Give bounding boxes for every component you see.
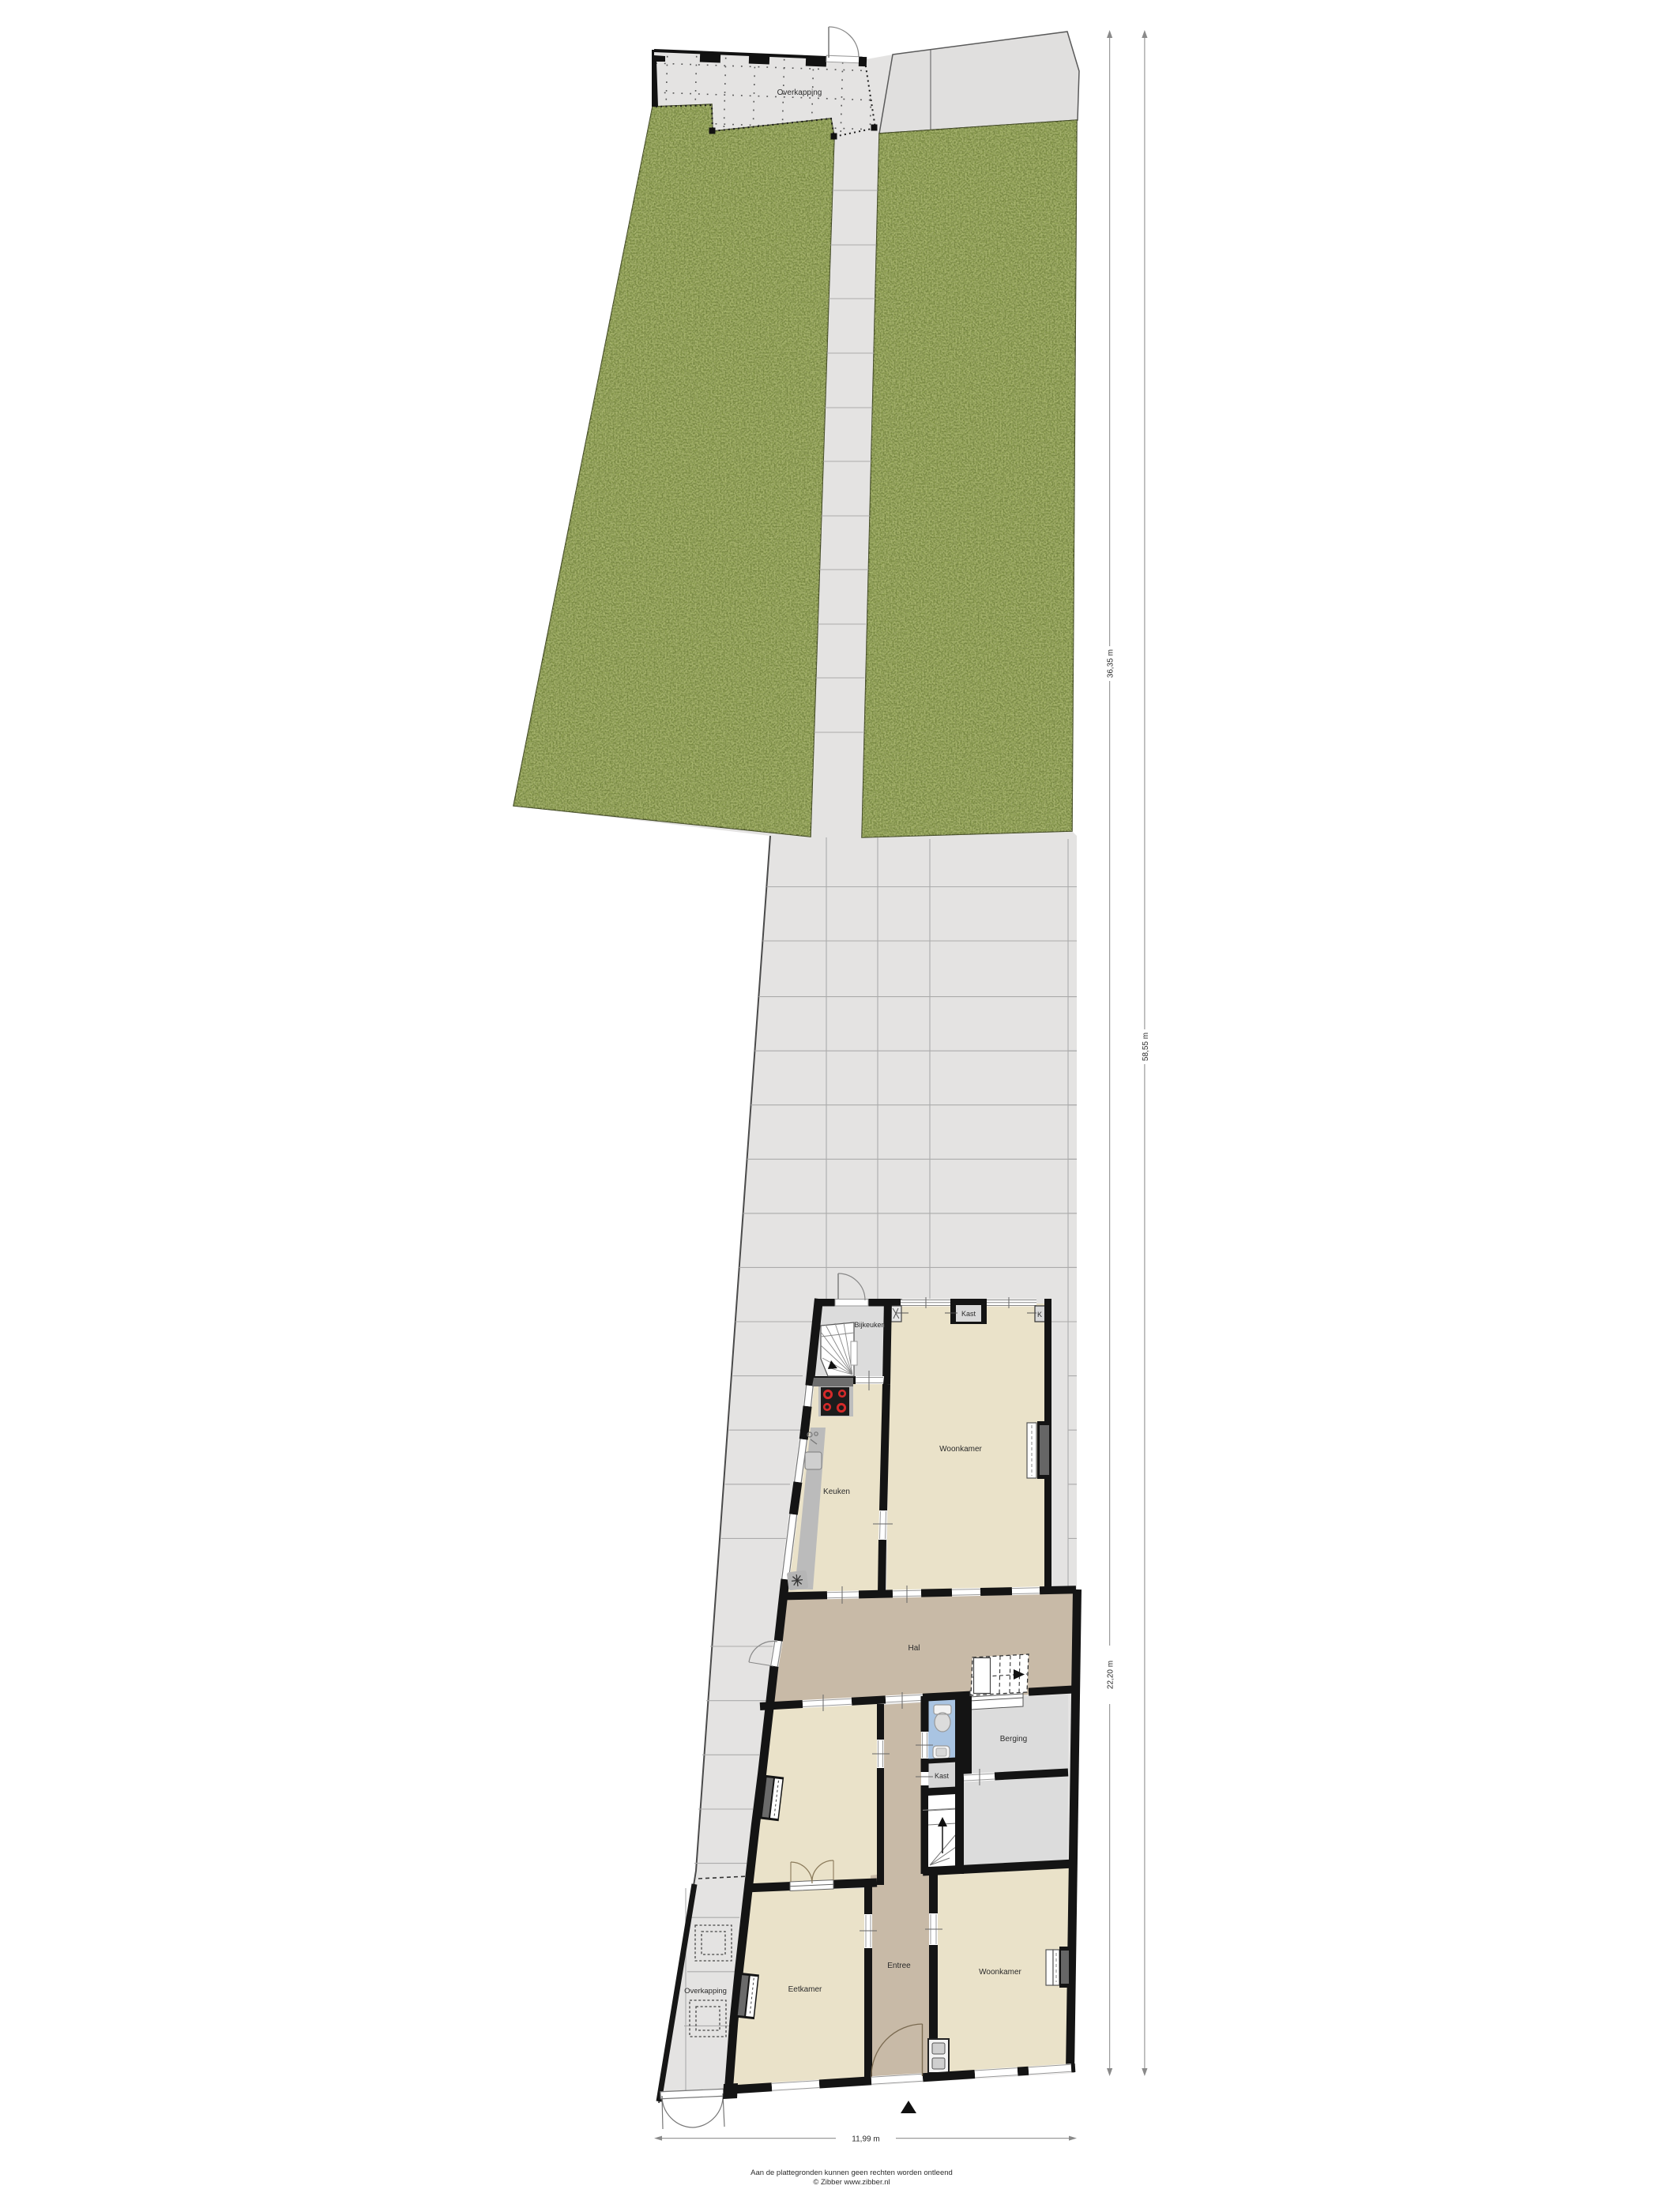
svg-text:Entree: Entree — [887, 1962, 911, 1970]
svg-text:Woonkamer: Woonkamer — [939, 1445, 982, 1454]
svg-text:11,99 m: 11,99 m — [852, 2135, 879, 2144]
svg-text:36,35 m: 36,35 m — [1107, 649, 1115, 678]
svg-text:Kast: Kast — [961, 1310, 976, 1318]
svg-text:Bijkeuken: Bijkeuken — [854, 1321, 885, 1329]
svg-text:Aan de plattegronden kunnen ge: Aan de plattegronden kunnen geen rechten… — [750, 2169, 953, 2177]
svg-text:Woonkamer: Woonkamer — [979, 1968, 1021, 1977]
svg-text:Keuken: Keuken — [823, 1488, 850, 1496]
svg-text:K: K — [1037, 1311, 1042, 1319]
svg-text:Overkapping: Overkapping — [777, 88, 822, 97]
svg-text:Berging: Berging — [1000, 1735, 1027, 1744]
svg-text:Hal: Hal — [908, 1644, 920, 1653]
svg-text:Kast: Kast — [935, 1772, 950, 1780]
svg-text:Eetkamer: Eetkamer — [788, 1985, 822, 1994]
svg-text:58,55 m: 58,55 m — [1142, 1033, 1150, 1061]
svg-text:Overkapping: Overkapping — [684, 1987, 727, 1996]
svg-text:© Zibber www.zibber.nl: © Zibber www.zibber.nl — [813, 2178, 890, 2187]
svg-text:22,20 m: 22,20 m — [1107, 1661, 1115, 1689]
